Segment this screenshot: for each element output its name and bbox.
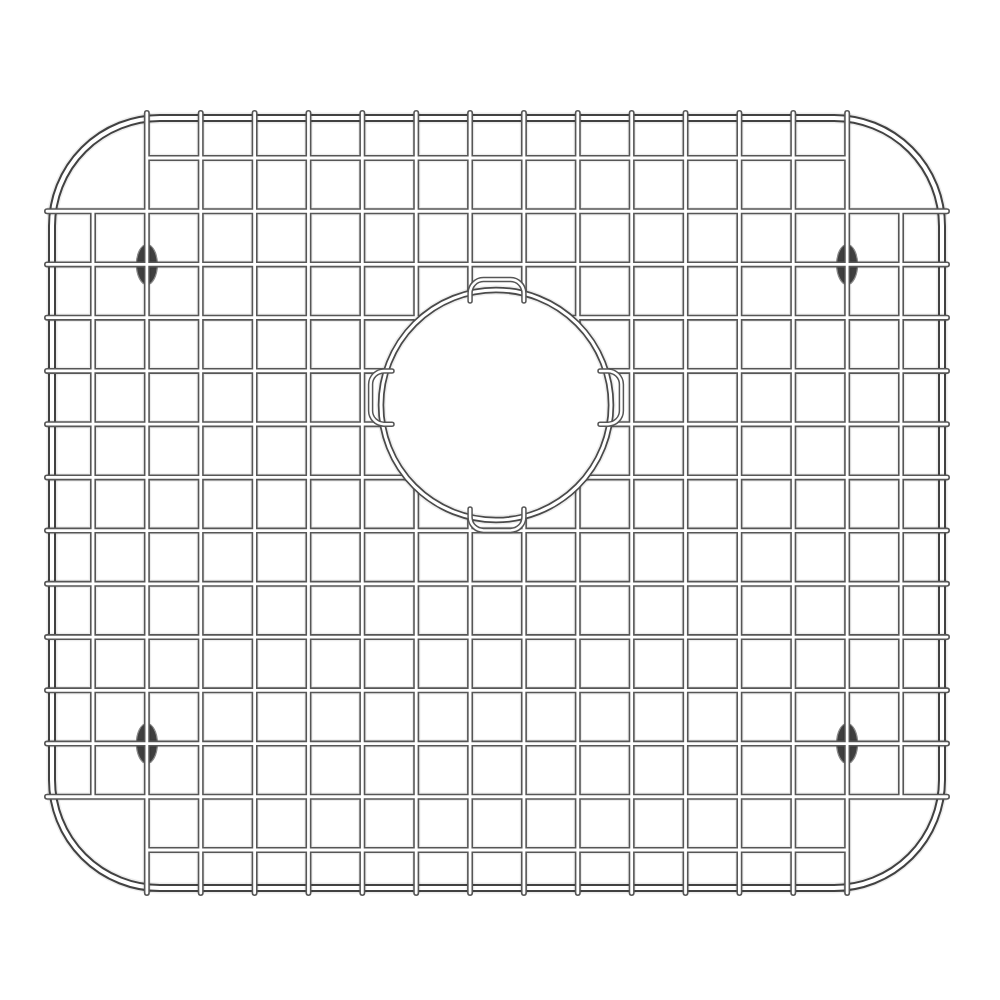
- sink-grid-illustration: [0, 0, 1000, 1000]
- frame-shadow: [52, 118, 942, 888]
- lattice-core: [47, 113, 947, 893]
- lattice-tube: [47, 113, 947, 893]
- wire-lattice: [47, 113, 947, 893]
- product-photo-canvas: [0, 0, 1000, 1000]
- lattice-shadow: [47, 113, 947, 893]
- frame-tube: [52, 118, 942, 888]
- rubber-feet: [136, 245, 857, 764]
- frame-core: [52, 118, 942, 888]
- outer-frame: [52, 118, 942, 888]
